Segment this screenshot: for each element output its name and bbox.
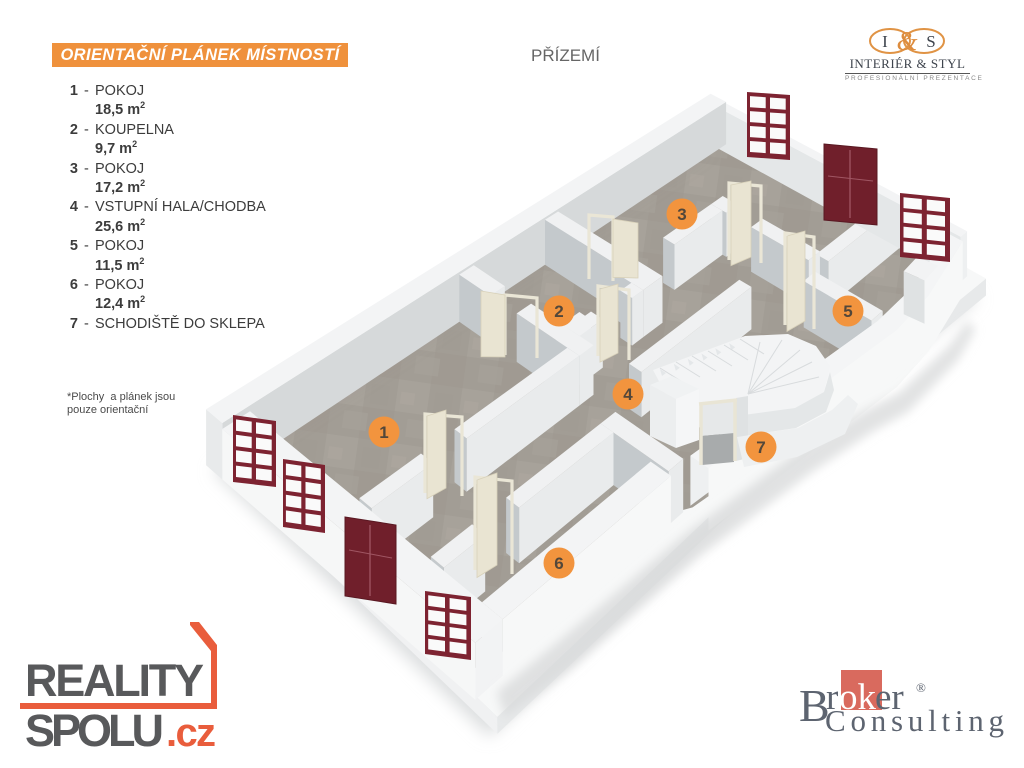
svg-text:6: 6 bbox=[554, 554, 563, 573]
svg-text:3: 3 bbox=[677, 205, 686, 224]
svg-text:4: 4 bbox=[623, 385, 633, 404]
svg-text:1: 1 bbox=[379, 423, 388, 442]
svg-text:SPOLU: SPOLU bbox=[25, 705, 164, 756]
svg-text:7: 7 bbox=[756, 438, 765, 457]
svg-text:2: 2 bbox=[554, 302, 563, 321]
svg-text:S: S bbox=[926, 32, 935, 51]
svg-text:Consulting: Consulting bbox=[825, 703, 1004, 738]
svg-text:I: I bbox=[882, 32, 888, 51]
svg-text:REALITY: REALITY bbox=[25, 655, 204, 706]
svg-text:®: ® bbox=[916, 680, 926, 695]
svg-text:.cz: .cz bbox=[166, 711, 216, 755]
svg-text:5: 5 bbox=[843, 302, 852, 321]
svg-text:&: & bbox=[896, 26, 917, 56]
